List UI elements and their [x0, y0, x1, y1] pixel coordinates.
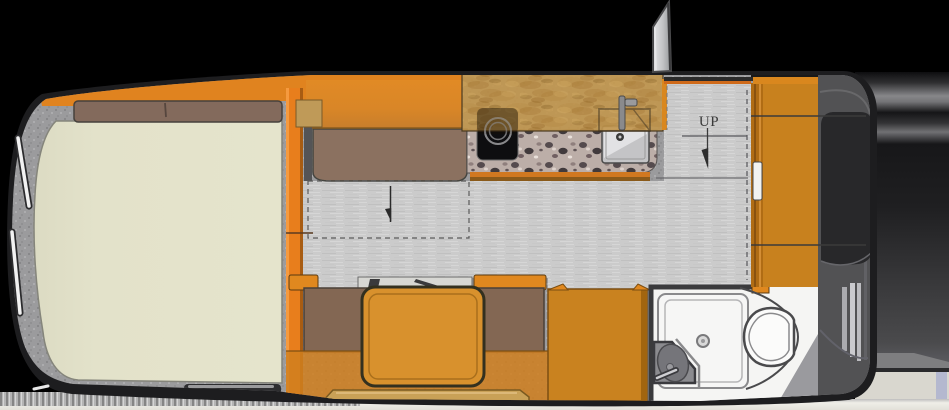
svg-text:UP: UP	[699, 114, 719, 130]
